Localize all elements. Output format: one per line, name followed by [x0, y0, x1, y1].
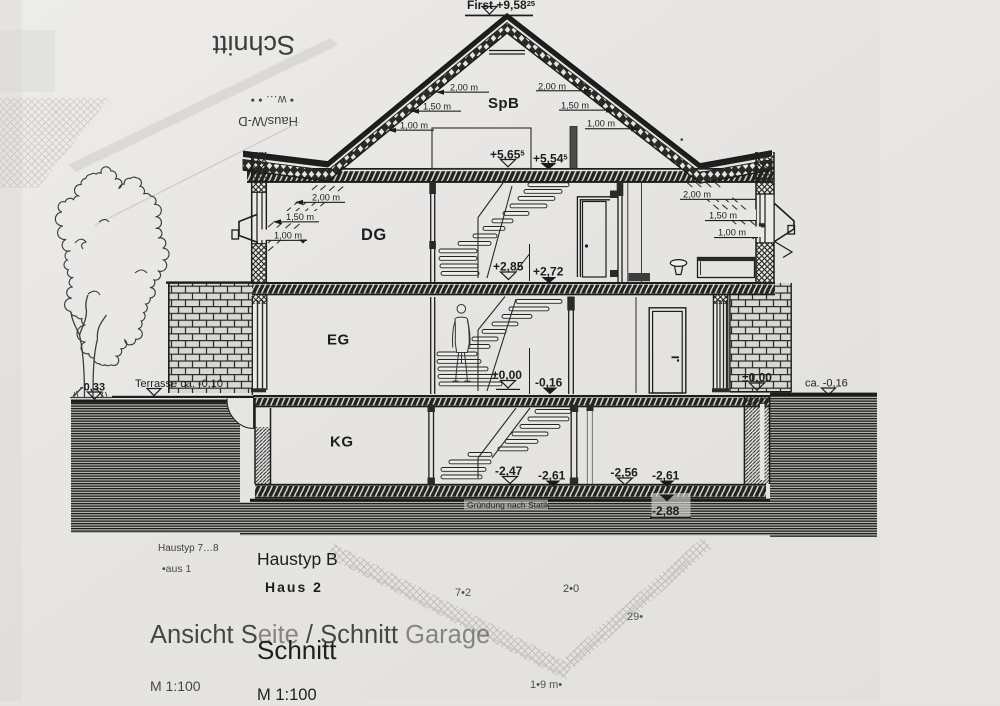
svg-text:KG: KG: [330, 434, 354, 451]
svg-text:1,50 m: 1,50 m: [286, 212, 314, 222]
svg-text:1,50 m: 1,50 m: [561, 101, 589, 111]
svg-text:29•: 29•: [627, 611, 643, 623]
svg-text:2,00 m: 2,00 m: [538, 82, 566, 92]
svg-text:1,00 m: 1,00 m: [718, 228, 746, 238]
svg-text:1,00 m: 1,00 m: [400, 121, 428, 131]
svg-text:-0,16: -0,16: [535, 376, 563, 390]
svg-text:1,00 m: 1,00 m: [274, 231, 302, 241]
svg-text:Haus 2: Haus 2: [265, 579, 323, 595]
svg-text:2,00 m: 2,00 m: [312, 193, 340, 203]
svg-text:SpB: SpB: [488, 95, 519, 112]
svg-text:1,50 m: 1,50 m: [423, 102, 451, 112]
svg-text:Schnitt: Schnitt: [257, 635, 337, 665]
svg-text:+2,72: +2,72: [533, 265, 564, 279]
svg-text:M 1:100: M 1:100: [150, 678, 201, 694]
svg-text:DG: DG: [361, 226, 387, 244]
svg-text:First +9,5825: First +9,5825: [467, 0, 535, 12]
svg-text:Haustyp 7…8: Haustyp 7…8: [158, 543, 219, 554]
svg-text:1,50 m: 1,50 m: [709, 211, 737, 221]
svg-text:Haustyp B: Haustyp B: [257, 549, 338, 569]
svg-text:EG: EG: [327, 332, 350, 349]
svg-text:•: •: [680, 135, 684, 146]
svg-text:-2,61: -2,61: [652, 469, 680, 483]
svg-text:2,00 m: 2,00 m: [683, 190, 711, 200]
svg-text:Schnitt: Schnitt: [212, 30, 295, 60]
svg-text:1•9 m•: 1•9 m•: [530, 679, 562, 691]
svg-text:• w… • •: • w… • •: [251, 93, 294, 107]
svg-text:-2,88: -2,88: [652, 504, 680, 518]
svg-text:•aus 1: •aus 1: [162, 563, 192, 575]
svg-text:M 1:100: M 1:100: [257, 686, 317, 701]
svg-text:2•0: 2•0: [563, 583, 579, 595]
svg-text:Gründung nach Statik: Gründung nach Statik: [467, 500, 550, 510]
svg-text:2,00 m: 2,00 m: [450, 83, 478, 93]
svg-text:1,00 m: 1,00 m: [587, 119, 615, 129]
svg-text:-2,61: -2,61: [538, 469, 566, 483]
svg-text:7•2: 7•2: [455, 587, 471, 599]
